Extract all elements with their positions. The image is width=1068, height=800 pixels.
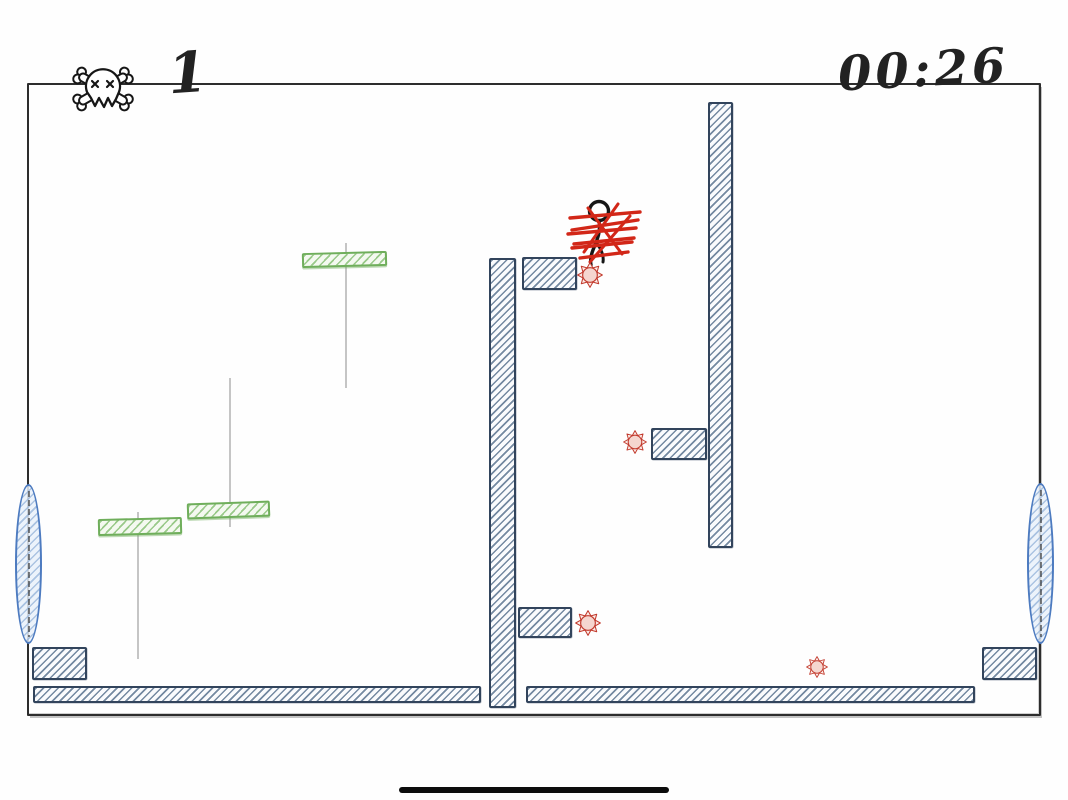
spike-hazard-icon (577, 262, 603, 292)
block-bottom-left (32, 647, 87, 680)
ledge-center-mid (518, 607, 572, 638)
spike-hazard-icon (575, 610, 601, 640)
green-platform-middle (187, 501, 271, 520)
player-hit-scribble (568, 204, 640, 262)
level-timer: 00:26 (837, 38, 1011, 103)
wall-right (708, 102, 733, 548)
wall-center (489, 258, 516, 708)
skull-crossbones-icon (68, 54, 138, 124)
block-bottom-right (982, 647, 1037, 680)
player-character (560, 190, 650, 274)
spike-hazard-icon (623, 430, 647, 458)
floor-right (526, 686, 975, 703)
spike-hazard-icon (806, 656, 828, 682)
portal-left (15, 484, 42, 644)
green-platform-left (98, 517, 182, 536)
green-platform-top (302, 251, 387, 268)
game-canvas[interactable]: 1 00:26 (0, 0, 1068, 800)
ledge-right-wall (651, 428, 707, 460)
floor-left (33, 686, 481, 703)
portal-right (1027, 483, 1054, 644)
home-indicator[interactable] (399, 787, 669, 793)
death-counter: 1 (166, 39, 209, 108)
